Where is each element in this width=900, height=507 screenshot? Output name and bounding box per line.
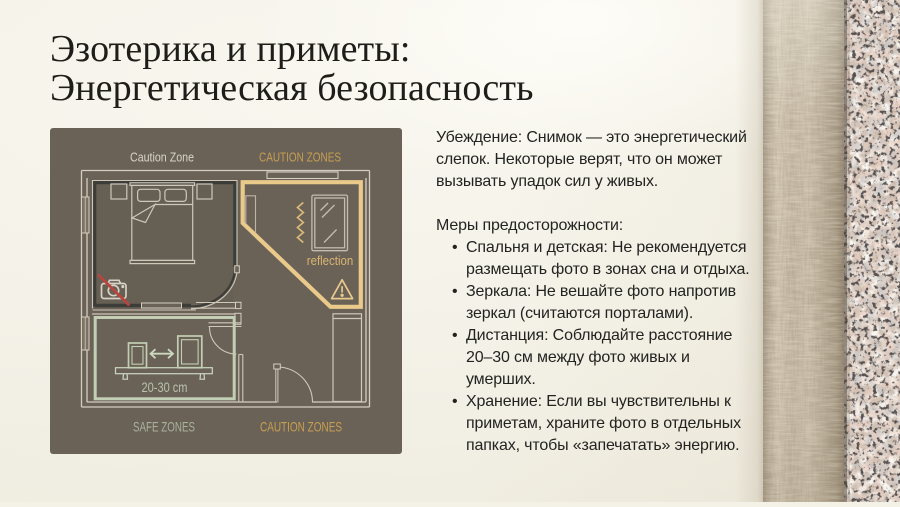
svg-text:SAFE ZONES: SAFE ZONES [133,419,195,435]
svg-text:Caution Zone: Caution Zone [130,150,194,165]
svg-text:CAUTION ZONES: CAUTION ZONES [260,419,342,435]
svg-text:20-30 cm: 20-30 cm [142,380,188,395]
svg-text:reflection: reflection [307,253,354,268]
svg-text:CAUTION ZONES: CAUTION ZONES [259,150,341,165]
